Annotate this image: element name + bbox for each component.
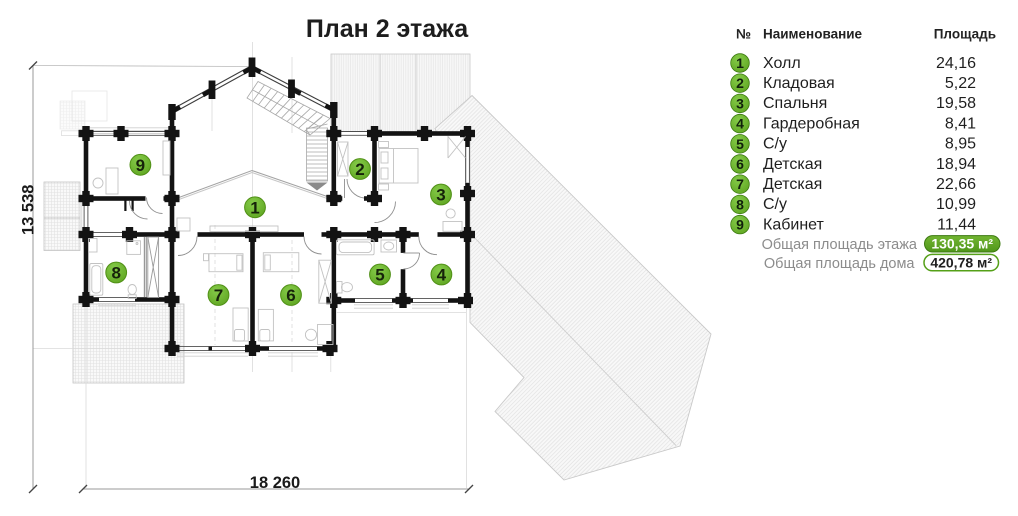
svg-text:3: 3 <box>736 95 744 111</box>
svg-text:2: 2 <box>736 75 744 91</box>
svg-text:С/у: С/у <box>763 136 787 153</box>
svg-text:6: 6 <box>736 156 744 172</box>
svg-text:5: 5 <box>375 266 384 285</box>
svg-text:Общая площадь этажа: Общая площадь этажа <box>762 237 918 253</box>
svg-text:1: 1 <box>736 55 744 71</box>
svg-text:9: 9 <box>136 156 145 175</box>
svg-text:11,44: 11,44 <box>937 216 976 233</box>
svg-text:8: 8 <box>111 264 120 283</box>
svg-text:7: 7 <box>736 176 744 192</box>
svg-text:8: 8 <box>736 196 744 212</box>
svg-text:8,41: 8,41 <box>945 115 976 132</box>
svg-text:Спальня: Спальня <box>763 95 827 112</box>
svg-text:Холл: Холл <box>763 55 801 72</box>
svg-text:420,78 м²: 420,78 м² <box>930 254 992 270</box>
svg-text:6: 6 <box>286 286 295 305</box>
svg-text:Кабинет: Кабинет <box>763 216 825 233</box>
svg-text:19,58: 19,58 <box>936 95 976 112</box>
svg-text:130,35 м²: 130,35 м² <box>931 236 993 252</box>
svg-text:1: 1 <box>250 198 259 217</box>
svg-text:8,95: 8,95 <box>945 136 976 153</box>
svg-text:Общая площадь дома: Общая площадь дома <box>764 256 916 272</box>
svg-text:С/у: С/у <box>763 196 787 213</box>
svg-text:3: 3 <box>436 186 445 205</box>
svg-text:5: 5 <box>736 136 744 152</box>
svg-text:24,16: 24,16 <box>936 55 976 72</box>
svg-text:4: 4 <box>736 116 744 132</box>
svg-text:10,99: 10,99 <box>936 196 976 213</box>
svg-text:2: 2 <box>355 160 364 179</box>
svg-text:План 2 этажа: План 2 этажа <box>306 15 469 43</box>
svg-text:22,66: 22,66 <box>936 176 976 193</box>
svg-text:13 538: 13 538 <box>20 185 38 235</box>
svg-text:№: № <box>736 27 751 42</box>
svg-text:Гардеробная: Гардеробная <box>763 115 860 132</box>
svg-text:Детская: Детская <box>763 176 822 193</box>
svg-text:Наименование: Наименование <box>763 27 863 42</box>
svg-text:18,94: 18,94 <box>936 156 976 173</box>
svg-text:Площадь: Площадь <box>934 27 996 42</box>
svg-text:18 260: 18 260 <box>250 474 300 492</box>
svg-text:4: 4 <box>437 266 447 285</box>
svg-text:Детская: Детская <box>763 156 822 173</box>
svg-text:Кладовая: Кладовая <box>763 75 835 92</box>
svg-text:5,22: 5,22 <box>945 75 976 92</box>
svg-text:9: 9 <box>736 217 744 233</box>
svg-text:7: 7 <box>214 286 223 305</box>
